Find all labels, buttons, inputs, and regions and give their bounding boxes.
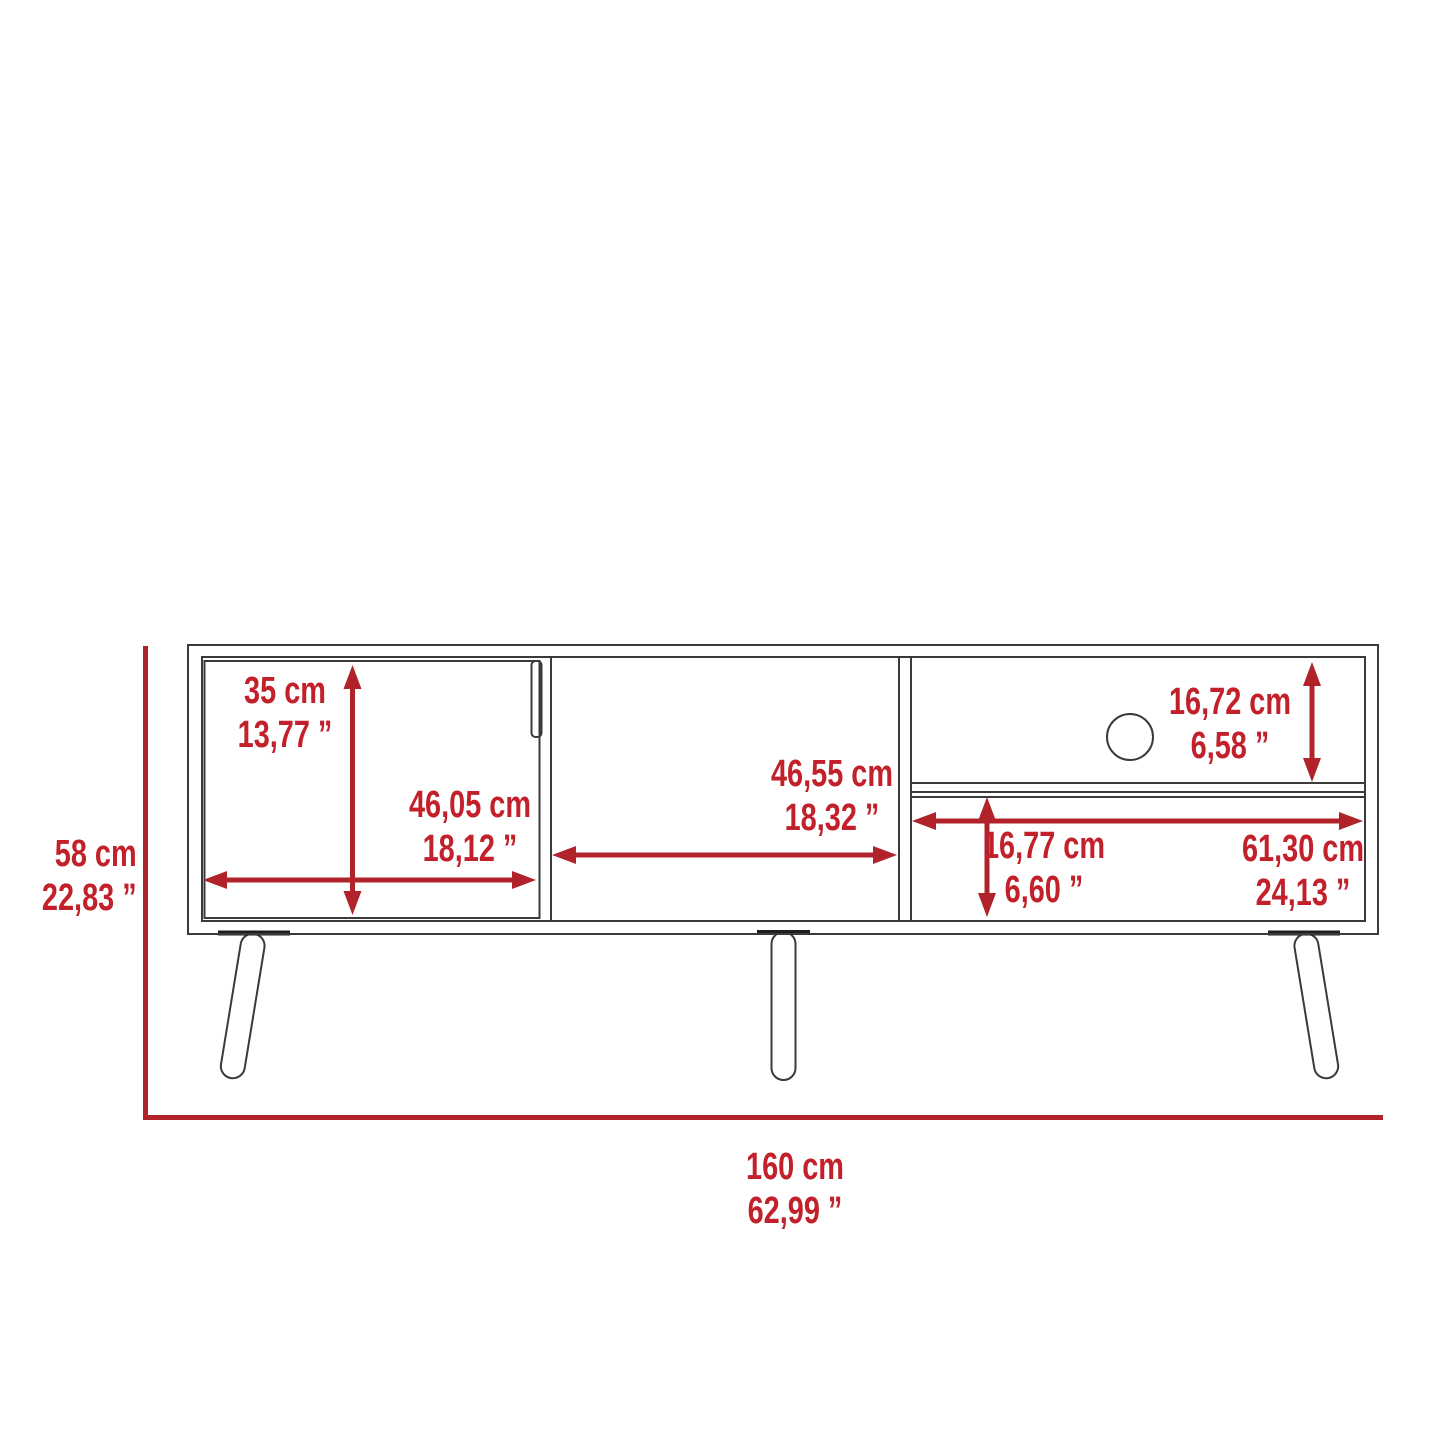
arrow-middle-width — [552, 846, 897, 864]
label-overall-width: 160 cm 62,99 ” — [746, 1145, 844, 1233]
dimension-inches: 6,58 ” — [1169, 724, 1291, 768]
dimension-cm: 160 cm — [746, 1145, 844, 1189]
dimension-cm: 61,30 cm — [1242, 827, 1364, 871]
cable-hole — [1107, 714, 1153, 760]
dimension-cm: 16,72 cm — [1169, 680, 1291, 724]
label-top-shelf-height: 16,72 cm 6,58 ” — [1169, 680, 1291, 768]
dimension-inches: 62,99 ” — [746, 1189, 844, 1233]
dimension-inches: 6,60 ” — [983, 868, 1105, 912]
dimension-inches: 24,13 ” — [1242, 871, 1364, 915]
label-bottom-shelf-width: 61,30 cm 24,13 ” — [1242, 827, 1364, 915]
dimension-cm: 46,55 cm — [771, 752, 893, 796]
arrow-door-width — [203, 871, 536, 889]
label-overall-height: 58 cm 22,83 ” — [42, 832, 137, 920]
tv-stand-dimension-diagram: 58 cm 22,83 ” 160 cm 62,99 ” 35 cm 13,77… — [0, 0, 1445, 1445]
arrow-top-shelf-height — [1303, 662, 1321, 782]
label-door-width: 46,05 cm 18,12 ” — [409, 783, 531, 871]
dimension-inches: 18,32 ” — [771, 796, 893, 840]
dimension-inches: 13,77 ” — [238, 713, 333, 757]
dimension-cm: 46,05 cm — [409, 783, 531, 827]
right-leg — [1293, 932, 1340, 1080]
dimension-inches: 18,12 ” — [409, 827, 531, 871]
label-bottom-shelf-height: 16,77 cm 6,60 ” — [983, 824, 1105, 912]
label-middle-width: 46,55 cm 18,32 ” — [771, 752, 893, 840]
left-leg — [219, 932, 266, 1080]
legs — [219, 932, 1340, 1080]
dimension-cm: 35 cm — [238, 669, 333, 713]
middle-leg — [772, 932, 796, 1080]
label-door-height: 35 cm 13,77 ” — [238, 669, 333, 757]
dimension-inches: 22,83 ” — [42, 876, 137, 920]
dimension-cm: 16,77 cm — [983, 824, 1105, 868]
dimension-cm: 58 cm — [42, 832, 137, 876]
